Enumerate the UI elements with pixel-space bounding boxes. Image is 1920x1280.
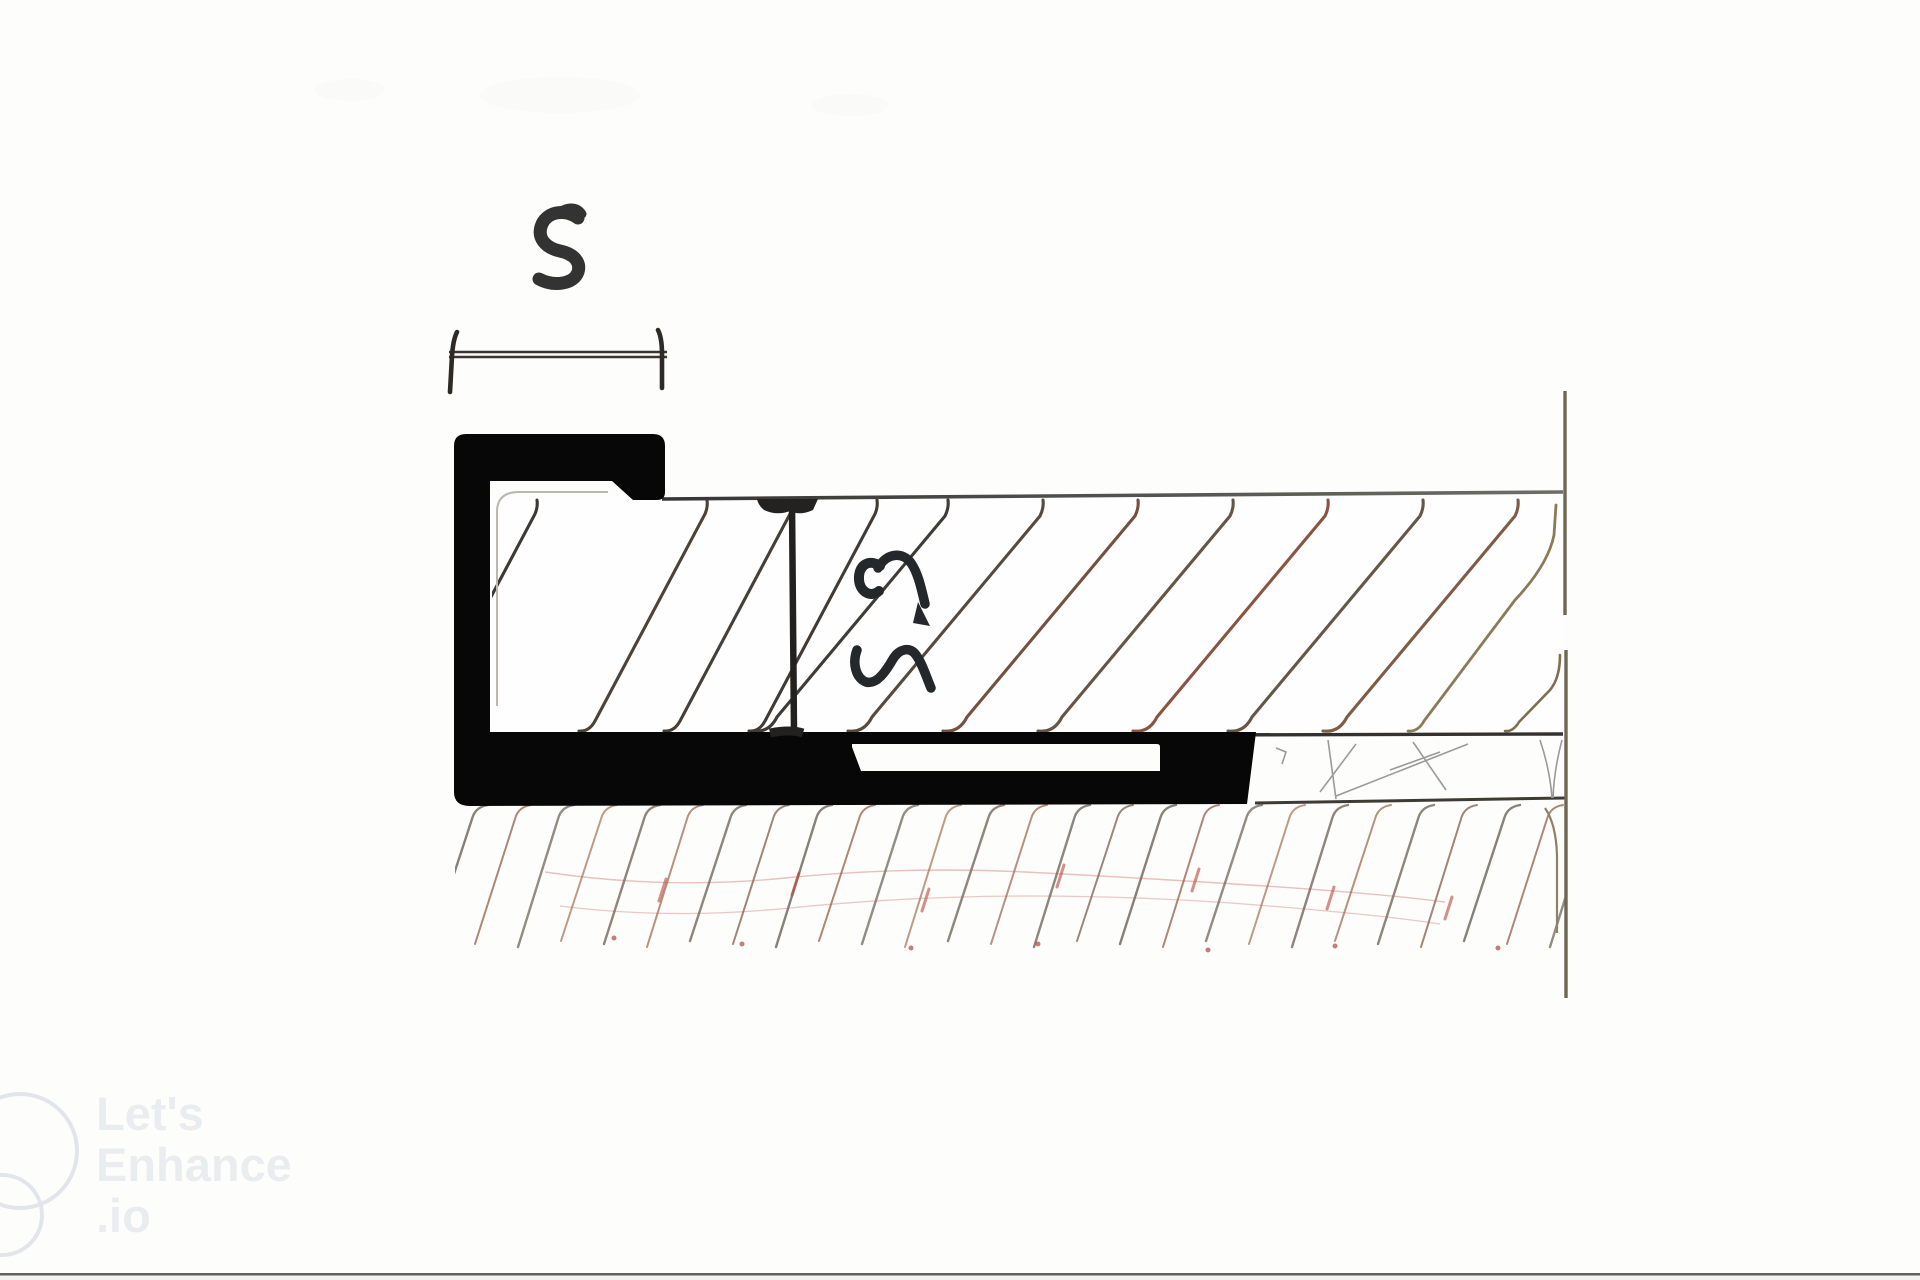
svg-text:Let's: Let's [96,1087,204,1140]
svg-text:Enhance: Enhance [96,1138,292,1191]
svg-text:.io: .io [96,1189,151,1242]
